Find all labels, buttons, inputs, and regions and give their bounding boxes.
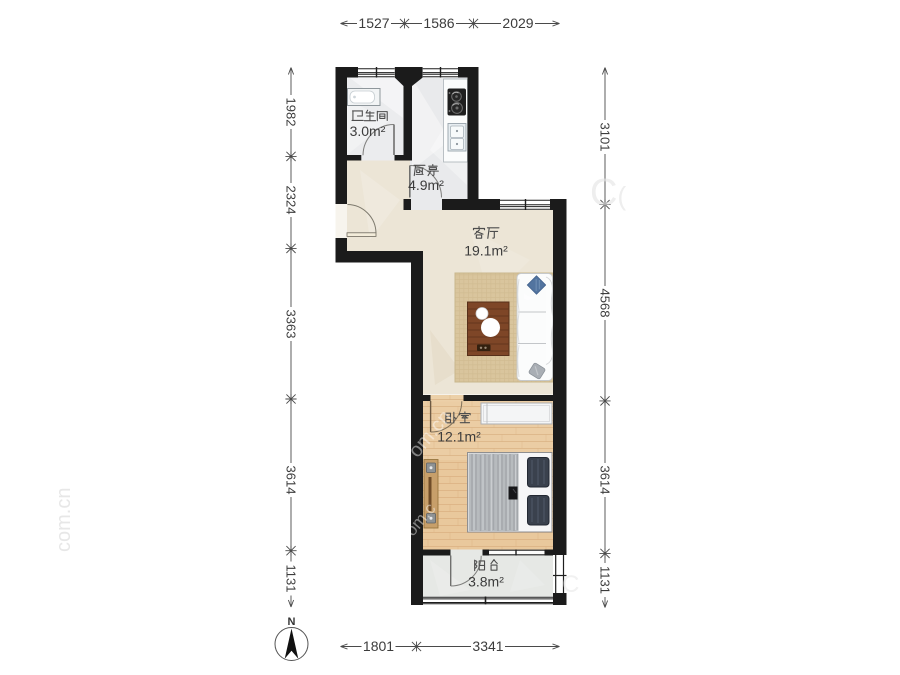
svg-text:1131: 1131: [284, 565, 299, 593]
svg-text:3614: 3614: [284, 466, 299, 495]
svg-text:1586: 1586: [423, 15, 454, 31]
svg-text:3363: 3363: [284, 310, 299, 339]
svg-text:3614: 3614: [598, 466, 613, 495]
svg-text:1982: 1982: [284, 98, 299, 127]
svg-text:19.1m²: 19.1m²: [464, 243, 508, 259]
svg-text:3.0m²: 3.0m²: [350, 123, 386, 139]
svg-text:1131: 1131: [598, 566, 613, 594]
svg-text:C: C: [562, 571, 579, 598]
svg-text:2029: 2029: [502, 15, 533, 31]
svg-text:4568: 4568: [598, 289, 613, 318]
svg-text:3.8m²: 3.8m²: [468, 574, 504, 590]
svg-text:N: N: [288, 616, 296, 628]
svg-text:2324: 2324: [284, 186, 299, 215]
svg-text:3341: 3341: [472, 638, 503, 654]
svg-text:4.9m²: 4.9m²: [408, 177, 444, 193]
svg-text:1527: 1527: [358, 15, 389, 31]
svg-text:3101: 3101: [598, 123, 613, 152]
svg-text:C(: C(: [590, 172, 626, 214]
svg-text:com.cn: com.cn: [53, 488, 75, 552]
svg-text:1801: 1801: [363, 638, 394, 654]
